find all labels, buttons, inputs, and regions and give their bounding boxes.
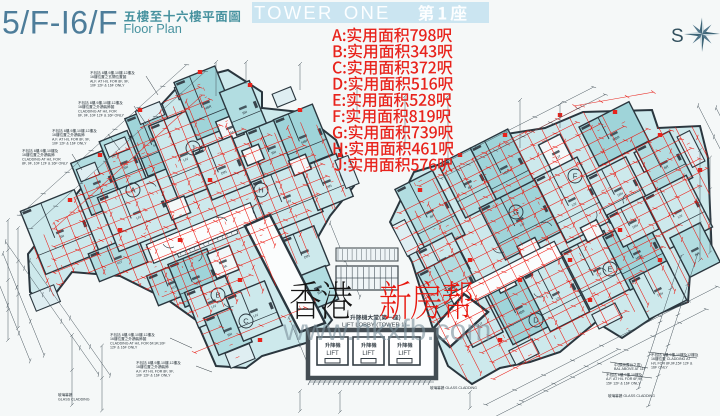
svg-text:TOWER ONE: TOWER ONE xyxy=(254,2,391,23)
svg-text:www.hkxfb.com: www.hkxfb.com xyxy=(282,314,491,347)
svg-text:J: J xyxy=(191,144,195,153)
svg-text:5/F-I6/F: 5/F-I6/F xyxy=(2,5,118,41)
svg-text:LIFT: LIFT xyxy=(362,351,375,357)
svg-text:12F & 16F ONLY: 12F & 16F ONLY xyxy=(110,346,138,350)
svg-text:BAL ABOVE AT 11F: BAL ABOVE AT 11F xyxy=(614,367,647,371)
svg-text:LIFT: LIFT xyxy=(398,351,411,357)
svg-text:玻璃幕牆: 玻璃幕牆 xyxy=(58,392,73,397)
svg-text:6F, 9F, 10F 12F & 16F ONLY: 6F, 9F, 10F 12F & 16F ONLY xyxy=(78,114,125,118)
svg-text:H: H xyxy=(258,186,263,195)
svg-text:10F 12F & 16F ONLY: 10F 12F & 16F ONLY xyxy=(90,84,125,88)
svg-text:C: C xyxy=(243,317,249,326)
svg-text:10F 12F & 16F ONLY: 10F 12F & 16F ONLY xyxy=(136,374,171,378)
svg-text:15F 12F & 16F ONLY: 15F 12F & 16F ONLY xyxy=(606,381,641,385)
svg-text:Floor Plan: Floor Plan xyxy=(124,21,182,36)
svg-text:16F ONLY: 16F ONLY xyxy=(651,366,668,370)
svg-text:LIFT: LIFT xyxy=(326,351,339,357)
svg-text:8F, 9F, 10F 12F & 16F ONLY: 8F, 9F, 10F 12F & 16F ONLY xyxy=(22,162,69,166)
svg-text:玻璃幕牆 GLASS CLADDING: 玻璃幕牆 GLASS CLADDING xyxy=(430,385,477,390)
svg-text:GLASS CLADDING: GLASS CLADDING xyxy=(58,398,90,402)
svg-text:S: S xyxy=(671,26,684,47)
svg-text:10F 12F & 16F ONLY: 10F 12F & 16F ONLY xyxy=(52,142,87,146)
svg-text:玻璃幕牆 GLASS CLADDING: 玻璃幕牆 GLASS CLADDING xyxy=(608,393,655,398)
svg-text:E: E xyxy=(607,265,612,274)
